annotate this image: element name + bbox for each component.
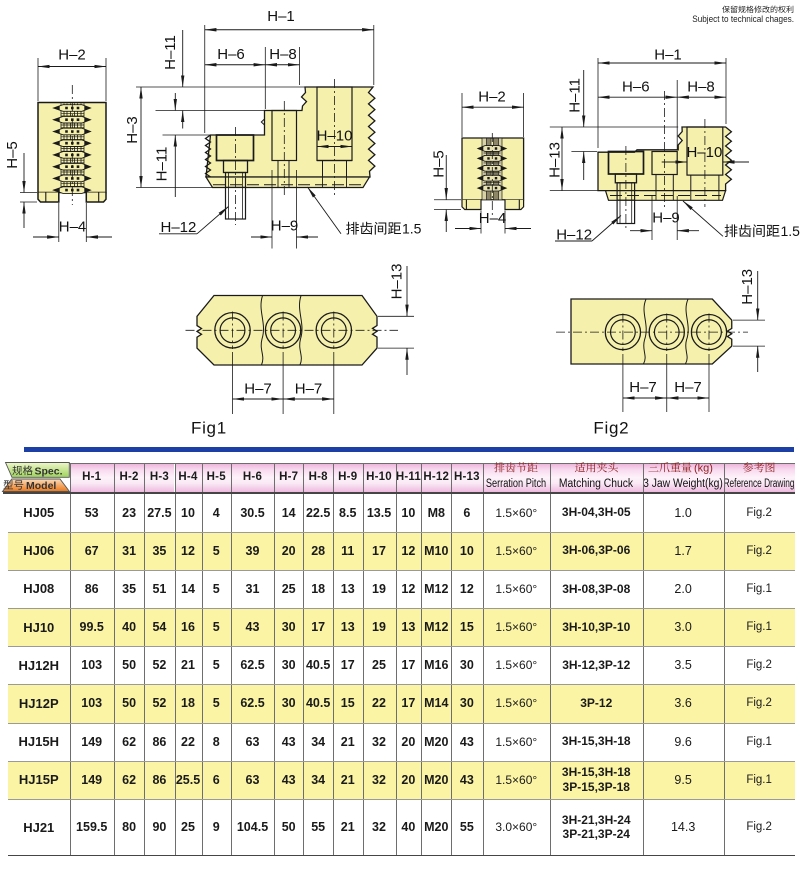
svg-text:Model: Model [26,480,56,492]
svg-text:Spec.: Spec. [35,465,63,477]
svg-text:(kg): (kg) [694,463,713,475]
